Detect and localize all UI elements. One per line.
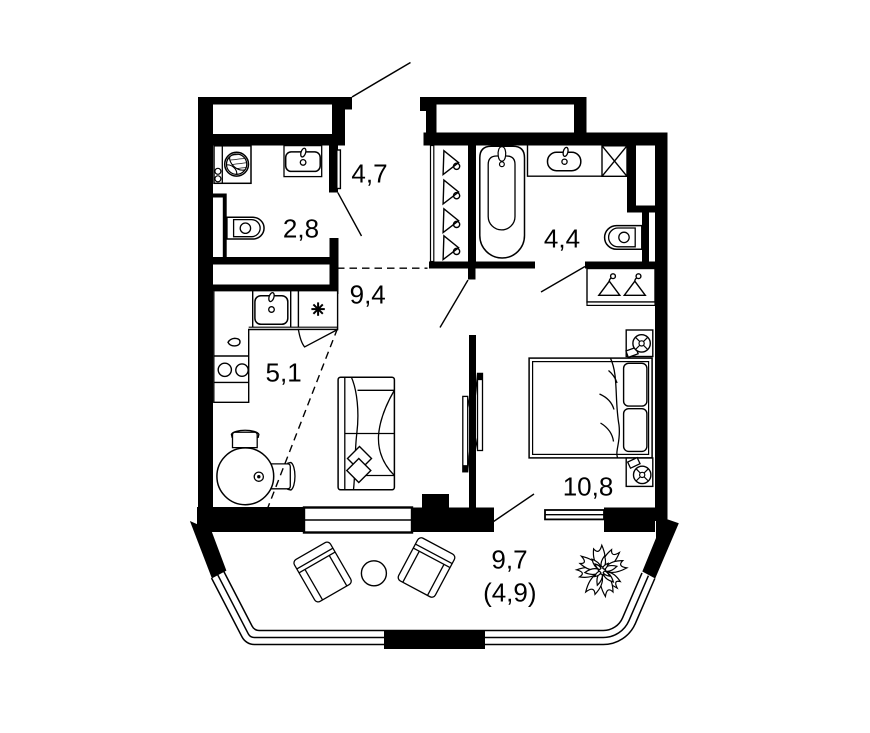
svg-text:10,8: 10,8	[563, 472, 614, 502]
svg-text:2,8: 2,8	[283, 214, 319, 244]
svg-text:4,7: 4,7	[351, 159, 387, 189]
svg-text:5,1: 5,1	[266, 358, 302, 388]
svg-text:4,4: 4,4	[544, 224, 580, 254]
svg-text:9,7: 9,7	[491, 545, 527, 575]
svg-text:(4,9): (4,9)	[483, 578, 536, 608]
svg-text:9,4: 9,4	[350, 280, 386, 310]
